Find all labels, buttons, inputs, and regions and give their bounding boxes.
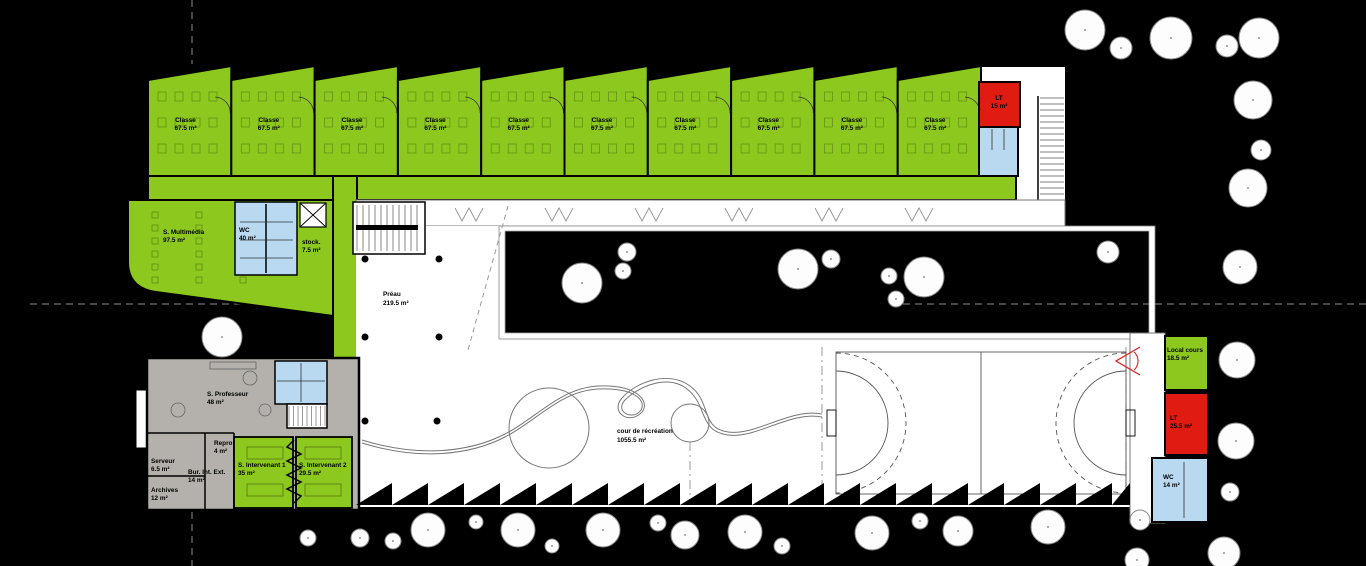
- bur-int-ext-label: Bur. Int. Ext.: [188, 469, 226, 476]
- tree: [912, 513, 928, 529]
- classroom-label: Classe: [508, 117, 529, 124]
- tree: [1216, 35, 1238, 57]
- tree: [650, 515, 666, 531]
- tree-trunk: [1120, 47, 1122, 49]
- classroom: Classe67.5 m²: [398, 66, 481, 176]
- tree-trunk: [307, 537, 309, 539]
- serveur-area: 6.5 m²: [151, 466, 169, 473]
- tree: [202, 317, 242, 357]
- repro-label: Repro: [214, 440, 233, 447]
- cour-label: cour de récréation: [617, 428, 673, 435]
- tree-trunk: [744, 531, 746, 533]
- tree: [1221, 483, 1239, 501]
- classroom-area: 67.5 m²: [508, 125, 530, 132]
- classroom: Classe67.5 m²: [231, 66, 314, 176]
- north-corridor: [148, 176, 1016, 200]
- tree: [501, 513, 535, 547]
- tree: [1223, 250, 1257, 284]
- tree-trunk: [359, 537, 361, 539]
- preau-label: Préau: [383, 291, 401, 298]
- tree: [1239, 18, 1279, 58]
- intervenant1-label: S. Intervenant 1: [238, 462, 286, 469]
- tree: [1065, 10, 1105, 50]
- tree: [1150, 17, 1192, 59]
- tree: [904, 257, 944, 297]
- classroom: Classe67.5 m²: [898, 66, 981, 176]
- stair-rail: [356, 225, 418, 230]
- archives-area: 12 m²: [151, 495, 168, 502]
- column: [362, 418, 369, 425]
- tree: [618, 243, 636, 261]
- tree-trunk: [684, 534, 686, 536]
- classroom-label: Classe: [342, 117, 363, 124]
- tree-trunk: [1170, 37, 1172, 39]
- courtyard-area: [499, 339, 1130, 507]
- classroom: Classe67.5 m²: [315, 66, 398, 176]
- tree-trunk: [919, 520, 921, 522]
- tree: [1229, 169, 1267, 207]
- wc-room-north: [979, 127, 1018, 176]
- wc-room-east: [1152, 458, 1208, 522]
- tree: [888, 291, 904, 307]
- multimedia-area: 97.5 m²: [163, 237, 185, 244]
- classroom-area: 67.5 m²: [174, 125, 196, 132]
- intervenant2-label: S. Intervenant 2: [299, 462, 347, 469]
- tree-trunk: [602, 529, 604, 531]
- tree-trunk: [1252, 99, 1254, 101]
- bur-int-ext-area: 14 m²: [188, 477, 205, 484]
- tree-trunk: [626, 251, 628, 253]
- covered-walkway: [356, 200, 1065, 226]
- wc14-area: 14 m²: [1163, 482, 1180, 489]
- cour-area: 1055.5 m²: [617, 437, 646, 444]
- classroom-label: Classe: [175, 117, 196, 124]
- classroom: Classe67.5 m²: [148, 66, 231, 176]
- column: [434, 418, 441, 425]
- tree-trunk: [957, 530, 959, 532]
- classroom-area: 67.5 m²: [758, 125, 780, 132]
- classroom: Classe67.5 m²: [731, 66, 814, 176]
- preau-area: 219.5 m²: [383, 300, 409, 307]
- classroom-label: Classe: [842, 117, 863, 124]
- repro-area: 4 m²: [214, 448, 227, 455]
- tree-trunk: [895, 298, 897, 300]
- tree: [1031, 510, 1065, 544]
- tree-trunk: [1047, 526, 1049, 528]
- tree-canopy: [1208, 537, 1240, 566]
- preau-area: [356, 226, 506, 507]
- professeur-label: S. Professeur: [207, 391, 249, 398]
- tree-trunk: [581, 282, 583, 284]
- tree: [1125, 548, 1149, 566]
- tree-trunk: [221, 336, 223, 338]
- column: [436, 256, 443, 263]
- classroom-area: 67.5 m²: [424, 125, 446, 132]
- tree: [385, 533, 401, 549]
- tree: [1251, 140, 1271, 160]
- intervenant1-area: 35 m²: [238, 470, 255, 477]
- tree: [943, 516, 973, 546]
- tree-trunk: [551, 545, 553, 547]
- classroom-area: 67.5 m²: [674, 125, 696, 132]
- lt-north-area: 15 m²: [991, 103, 1008, 110]
- classroom-area: 67.5 m²: [924, 125, 946, 132]
- lt-east-label: LT: [1170, 415, 1177, 422]
- professeur-area: 48 m²: [207, 399, 224, 406]
- tree-trunk: [1136, 559, 1138, 561]
- tree-trunk: [517, 529, 519, 531]
- serveur-label: Serveur: [151, 458, 175, 465]
- tree-trunk: [1084, 29, 1086, 31]
- tree-trunk: [781, 545, 783, 547]
- tree: [1097, 241, 1119, 263]
- tree-trunk: [1139, 519, 1141, 521]
- tree: [469, 515, 483, 529]
- tree: [1218, 423, 1254, 459]
- classroom-label: Classe: [258, 117, 279, 124]
- local-cours-area: 18.5 m²: [1167, 355, 1189, 362]
- tree: [671, 521, 699, 549]
- classroom: Classe67.5 m²: [814, 66, 897, 176]
- tree: [562, 263, 602, 303]
- classroom-wing: Classe67.5 m²Classe67.5 m²Classe67.5 m²C…: [148, 66, 981, 176]
- local-cours-room: [1165, 336, 1208, 390]
- classroom: Classe67.5 m²: [648, 66, 731, 176]
- buildings: Classe67.5 m²Classe67.5 m²Classe67.5 m²C…: [128, 66, 1208, 523]
- column: [362, 256, 369, 263]
- tree-trunk: [1107, 251, 1109, 253]
- classroom-area: 67.5 m²: [258, 125, 280, 132]
- intervenant2-area: 29.5 m²: [299, 470, 321, 477]
- tree: [778, 249, 818, 289]
- plan-drawing: Classe67.5 m²Classe67.5 m²Classe67.5 m²C…: [0, 0, 1366, 566]
- wc40-area: 40 m²: [239, 235, 256, 242]
- tree-trunk: [888, 275, 890, 277]
- classroom-label: Classe: [675, 117, 696, 124]
- entrance-recess: [136, 390, 147, 448]
- tree: [1219, 342, 1255, 378]
- tree-trunk: [1239, 266, 1241, 268]
- tree-trunk: [1247, 187, 1249, 189]
- tree: [1208, 537, 1240, 566]
- tree-trunk: [1229, 491, 1231, 493]
- tree: [728, 515, 762, 549]
- floor-plan: Classe67.5 m²Classe67.5 m²Classe67.5 m²C…: [0, 0, 1366, 566]
- tree: [822, 250, 840, 268]
- tree: [881, 268, 897, 284]
- archives-label: Archives: [151, 487, 178, 494]
- classroom-label: Classe: [425, 117, 446, 124]
- wc14-label: WC: [1163, 474, 1174, 481]
- classroom-label: Classe: [592, 117, 613, 124]
- tree: [1130, 510, 1150, 530]
- column: [362, 334, 369, 341]
- tree-trunk: [475, 521, 477, 523]
- tree: [615, 263, 631, 279]
- tree-canopy: [1125, 548, 1149, 566]
- tree-trunk: [1258, 37, 1260, 39]
- tree: [774, 538, 790, 554]
- column: [436, 334, 443, 341]
- tree-trunk: [1260, 149, 1262, 151]
- lt-east-area: 25.5 m²: [1170, 423, 1192, 430]
- multimedia-label: S. Multimédia: [163, 229, 205, 236]
- tree: [1234, 81, 1272, 119]
- tree-trunk: [427, 529, 429, 531]
- tree: [300, 530, 316, 546]
- lt-north-label: LT: [995, 95, 1002, 102]
- tree-trunk: [923, 276, 925, 278]
- classroom: Classe67.5 m²: [481, 66, 564, 176]
- tree: [351, 529, 369, 547]
- tree-trunk: [1235, 440, 1237, 442]
- classroom-area: 67.5 m²: [841, 125, 863, 132]
- classroom-area: 67.5 m²: [341, 125, 363, 132]
- wc40-label: WC: [239, 227, 250, 234]
- tree-trunk: [392, 540, 394, 542]
- stock-area: 7.5 m²: [302, 247, 320, 254]
- tree: [855, 516, 889, 550]
- stock-label: stock.: [302, 239, 321, 246]
- classroom-area: 67.5 m²: [591, 125, 613, 132]
- tree-trunk: [797, 268, 799, 270]
- tree-trunk: [657, 522, 659, 524]
- classroom-label: Classe: [758, 117, 779, 124]
- tree-trunk: [1236, 359, 1238, 361]
- tree: [586, 513, 620, 547]
- tree-trunk: [1223, 552, 1225, 554]
- local-cours-label: Local cours: [1167, 347, 1203, 354]
- tree: [411, 513, 445, 547]
- tree-trunk: [830, 258, 832, 260]
- tree-trunk: [871, 532, 873, 534]
- tree: [545, 539, 559, 553]
- tree-trunk: [1226, 45, 1228, 47]
- classroom-label: Classe: [925, 117, 946, 124]
- tree: [1110, 37, 1132, 59]
- tree-trunk: [622, 270, 624, 272]
- classroom: Classe67.5 m²: [565, 66, 648, 176]
